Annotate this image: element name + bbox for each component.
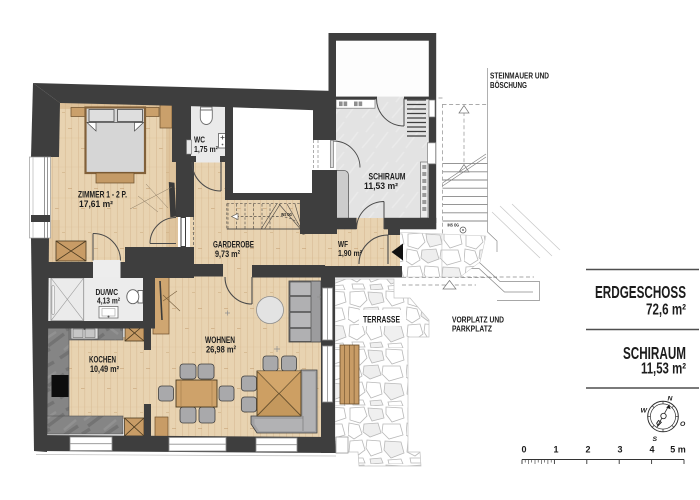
svg-text:INS OG: INS OG [448, 223, 460, 228]
svg-text:0: 0 [521, 445, 526, 455]
svg-text:11,53 m²: 11,53 m² [641, 361, 686, 378]
svg-text:4: 4 [649, 445, 654, 455]
svg-text:26,98 m²: 26,98 m² [206, 345, 236, 356]
svg-text:5 m: 5 m [670, 445, 686, 455]
svg-text:W: W [641, 408, 648, 415]
svg-text:3: 3 [617, 445, 622, 455]
svg-text:INS OG: INS OG [281, 212, 292, 217]
svg-text:KOCHEN: KOCHEN [89, 355, 116, 365]
svg-text:2: 2 [585, 445, 590, 455]
svg-text:TERRASSE: TERRASSE [363, 315, 400, 326]
svg-text:11,53 m²: 11,53 m² [364, 181, 398, 191]
svg-text:PARKPLATZ: PARKPLATZ [452, 324, 492, 334]
svg-text:1,75 m²: 1,75 m² [194, 145, 218, 154]
svg-text:10,49 m²: 10,49 m² [90, 364, 119, 374]
svg-text:STEINMAUER UND: STEINMAUER UND [490, 71, 549, 81]
svg-text:1,90 m²: 1,90 m² [338, 249, 362, 258]
svg-text:O: O [680, 421, 686, 428]
svg-text:WC: WC [194, 136, 205, 145]
svg-text:ERDGESCHOSS: ERDGESCHOSS [595, 282, 686, 302]
svg-text:WF: WF [338, 240, 348, 249]
svg-text:9,73 m²: 9,73 m² [215, 249, 240, 260]
svg-text:17,61 m²: 17,61 m² [79, 199, 113, 209]
svg-text:4,13 m²: 4,13 m² [97, 297, 120, 306]
svg-text:SCHIRAUM: SCHIRAUM [369, 172, 406, 182]
svg-text:ZIMMER 1 - 2 P.: ZIMMER 1 - 2 P. [78, 190, 127, 200]
svg-text:1: 1 [553, 445, 558, 455]
svg-text:72,6 m²: 72,6 m² [646, 302, 686, 319]
svg-text:BÖSCHUNG: BÖSCHUNG [490, 80, 527, 90]
svg-text:S: S [653, 436, 658, 443]
